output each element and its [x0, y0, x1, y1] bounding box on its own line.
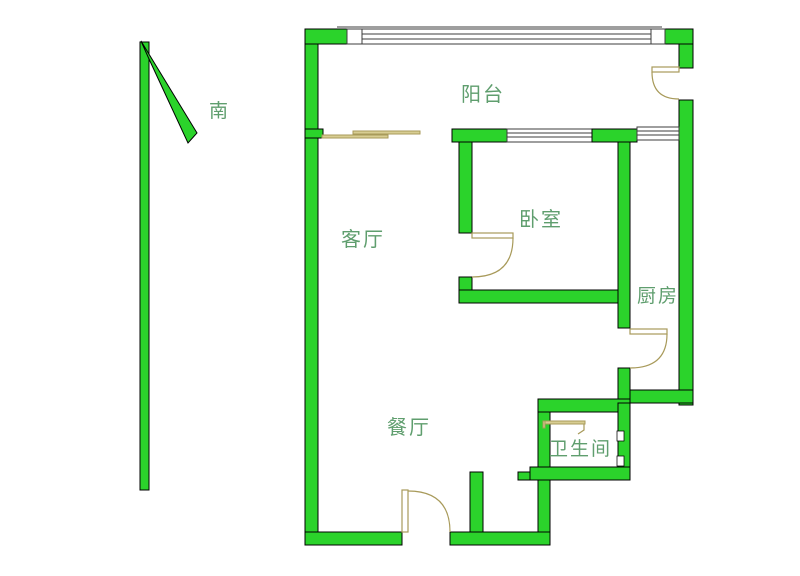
label-south: 南: [209, 100, 230, 122]
bathroom-sliding-door-hook: [578, 424, 584, 434]
wall-exterior-left: [305, 29, 318, 545]
wall-top-left-cap: [305, 29, 347, 44]
wall-exterior-right-main: [679, 100, 693, 405]
label-kitchen: 厨房: [637, 285, 679, 307]
kitchen-door: [630, 329, 667, 368]
balcony-window-frame: [347, 29, 665, 44]
balcony-door: [652, 67, 679, 99]
compass-arrow: [140, 41, 197, 490]
wall-bathroom-top: [538, 399, 630, 412]
wall-bottom-left: [305, 532, 402, 545]
balcony-door-swing-arc: [652, 72, 679, 99]
label-bathroom: 卫生间: [549, 438, 612, 460]
wall-entry-stub: [470, 472, 483, 532]
balcony-door-leaf: [652, 67, 679, 72]
bathroom-sliding-door-end-tick: [543, 421, 545, 428]
balcony-sliding-door: [322, 131, 420, 138]
wall-bathroom-lower-left: [538, 480, 550, 532]
wall-bedroom-kitchen-divider-lower: [618, 368, 630, 403]
kitchen-window-frame: [637, 127, 679, 140]
bedroom-window-frame: [507, 129, 592, 142]
wall-balcony-divider-b: [592, 129, 637, 142]
balcony-window: [337, 27, 665, 44]
bedroom-window: [507, 129, 592, 142]
sliding-door-leaf-upper: [353, 131, 420, 134]
label-bedroom: 卧室: [519, 207, 563, 231]
entrance-door: [402, 490, 450, 532]
wall-kitchen-bottom: [628, 390, 693, 403]
wall-top-right-corner: [665, 29, 693, 44]
kitchen-door-leaf: [630, 329, 667, 334]
bathroom-sliding-door-track: [545, 421, 585, 424]
floor-plan-canvas: 南: [0, 0, 800, 576]
entrance-door-swing-arc: [408, 491, 450, 532]
wall-bedroom-left-upper: [459, 142, 472, 233]
wall-balcony-divider-nub: [305, 129, 323, 138]
label-living-room: 客厅: [341, 227, 385, 251]
sliding-door-leaf-lower: [322, 135, 388, 138]
label-dining-room: 餐厅: [387, 415, 431, 439]
wall-bedroom-bottom: [459, 290, 630, 303]
bedroom-door-leaf: [472, 233, 513, 238]
wall-balcony-divider-a: [452, 129, 507, 142]
bedroom-door: [472, 233, 513, 277]
label-balcony: 阳台: [461, 82, 505, 106]
kitchen-door-swing-arc: [630, 334, 667, 368]
compass-arrow-shaft: [140, 42, 149, 490]
bedroom-door-swing-arc: [472, 238, 513, 277]
entrance-door-leaf: [402, 490, 408, 532]
floor-plan: 南: [0, 0, 800, 576]
bathroom-right-wall-notch: [617, 456, 624, 466]
wall-exterior-right-upper: [679, 44, 693, 68]
kitchen-window: [637, 127, 679, 140]
wall-bedroom-kitchen-divider: [618, 142, 630, 328]
wall-bottom-right: [450, 532, 550, 545]
wall-bathroom-bottom: [530, 467, 630, 480]
bathroom-right-wall-notch: [617, 431, 624, 441]
wall-bathroom-bottom-extension: [518, 472, 530, 480]
